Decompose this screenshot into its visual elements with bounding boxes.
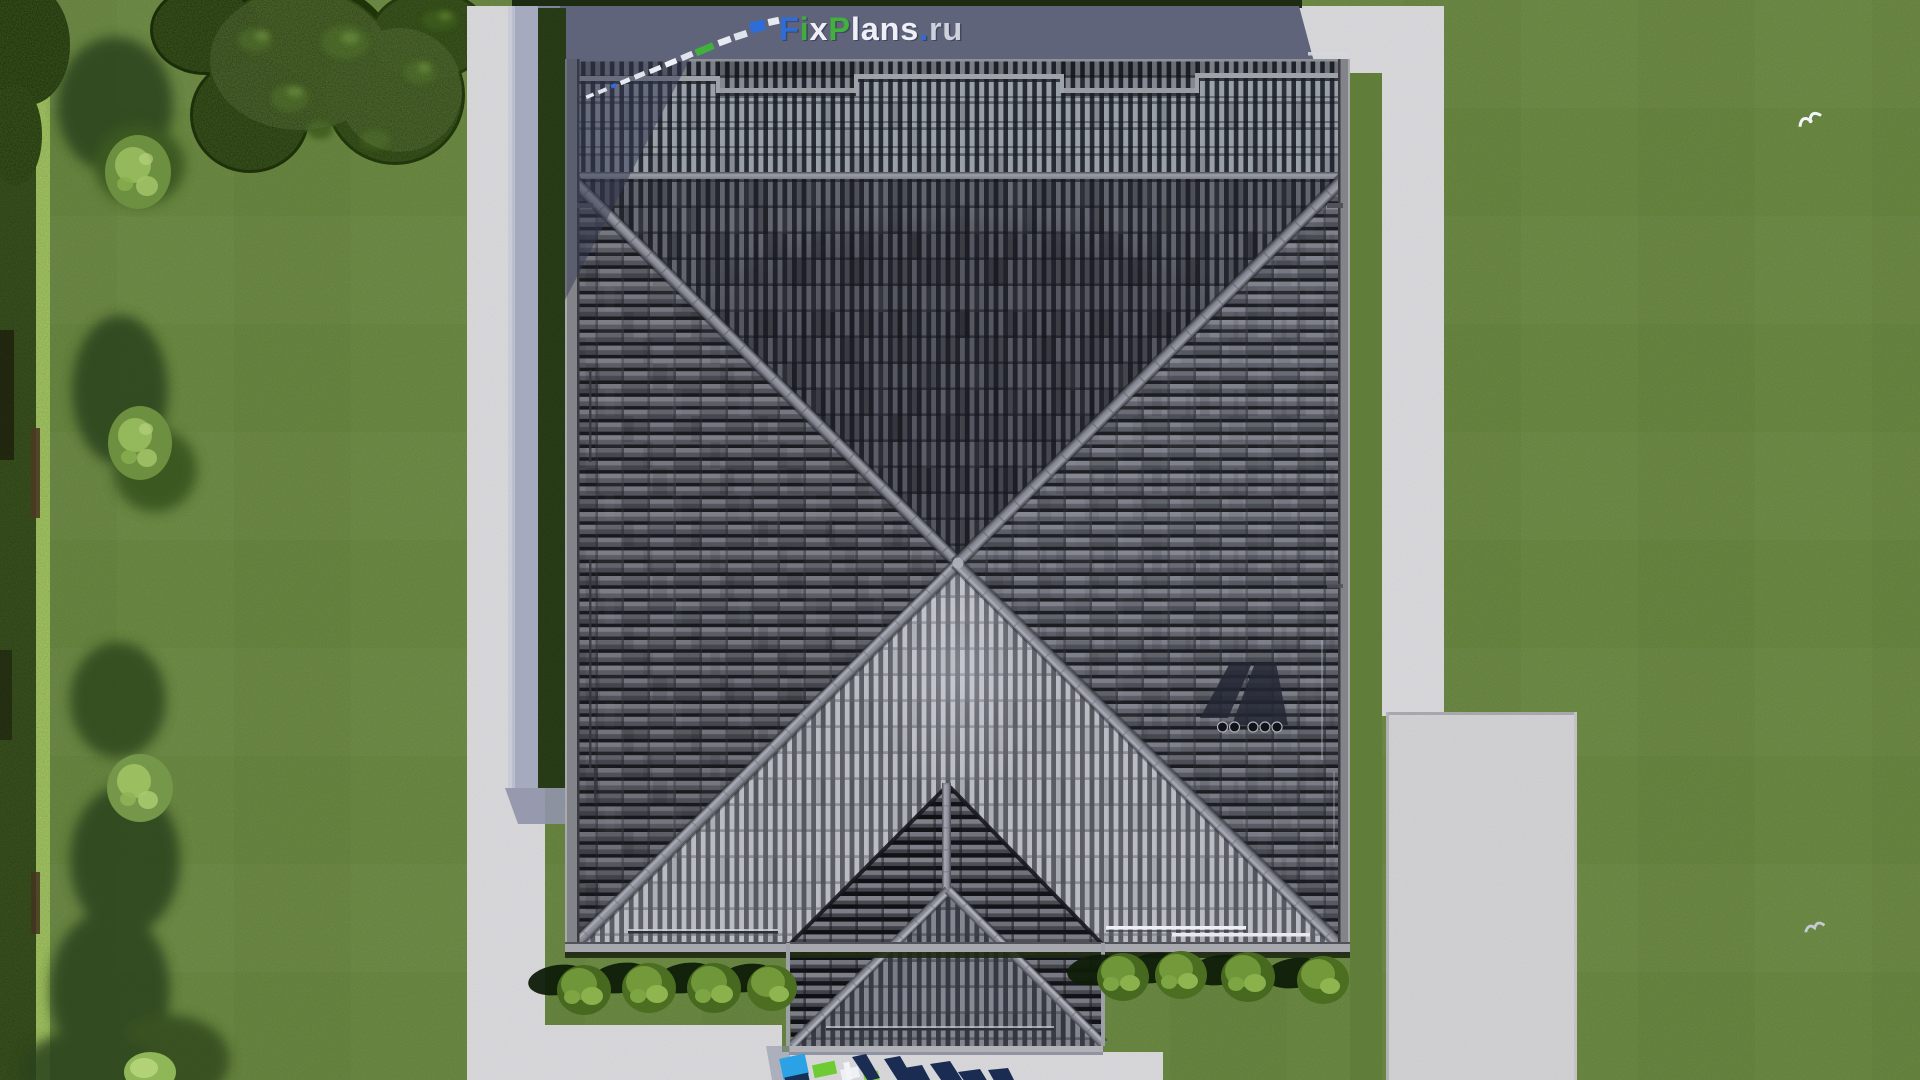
svg-text:FixPlans.ru: FixPlans.ru	[779, 11, 963, 47]
